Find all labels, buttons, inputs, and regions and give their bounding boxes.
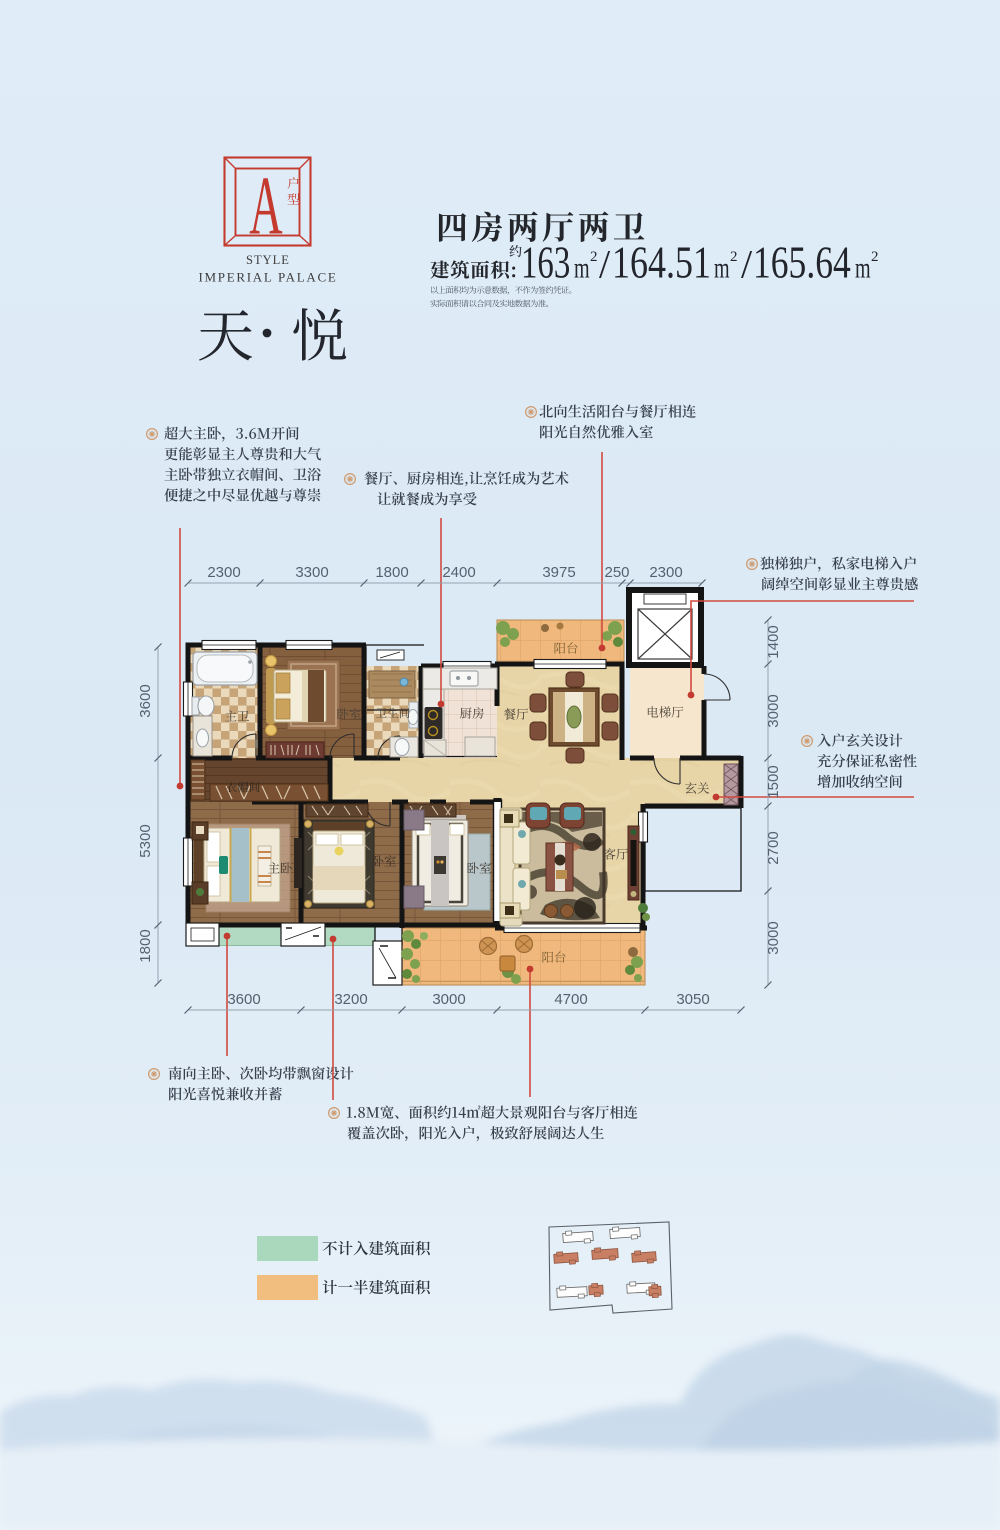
svg-text:2300: 2300 (207, 564, 240, 581)
svg-text:3050: 3050 (676, 991, 709, 1008)
svg-text:3600: 3600 (137, 684, 154, 717)
svg-text:1800: 1800 (375, 564, 408, 581)
svg-text:IMPERIAL PALACE: IMPERIAL PALACE (198, 270, 337, 285)
svg-text:1500: 1500 (765, 765, 782, 798)
svg-text:3000: 3000 (765, 694, 782, 727)
svg-text:2700: 2700 (765, 831, 782, 864)
svg-text:3300: 3300 (295, 564, 328, 581)
svg-text:A: A (249, 159, 282, 252)
svg-text:3000: 3000 (432, 991, 465, 1008)
svg-text:3200: 3200 (334, 991, 367, 1008)
svg-text:4700: 4700 (554, 991, 587, 1008)
svg-text:250: 250 (604, 564, 629, 581)
svg-text:m: m (714, 250, 730, 284)
svg-text:2: 2 (590, 249, 598, 265)
svg-text:165.64: 165.64 (753, 238, 851, 288)
svg-text:5300: 5300 (137, 824, 154, 857)
svg-text:3600: 3600 (227, 991, 260, 1008)
svg-text:163: 163 (521, 238, 570, 288)
svg-text:2300: 2300 (649, 564, 682, 581)
svg-text:2: 2 (730, 249, 738, 265)
svg-text:m: m (574, 250, 590, 284)
svg-text:3975: 3975 (542, 564, 575, 581)
svg-text:2400: 2400 (442, 564, 475, 581)
svg-text:3000: 3000 (765, 921, 782, 954)
svg-text:2: 2 (871, 249, 879, 265)
svg-text:STYLE: STYLE (246, 253, 290, 267)
svg-text:164.51: 164.51 (612, 238, 711, 288)
svg-text:m: m (855, 250, 871, 284)
svg-text:/: / (741, 242, 753, 287)
svg-text:1400: 1400 (765, 625, 782, 658)
svg-text:/: / (599, 242, 611, 287)
svg-text:1800: 1800 (137, 929, 154, 962)
